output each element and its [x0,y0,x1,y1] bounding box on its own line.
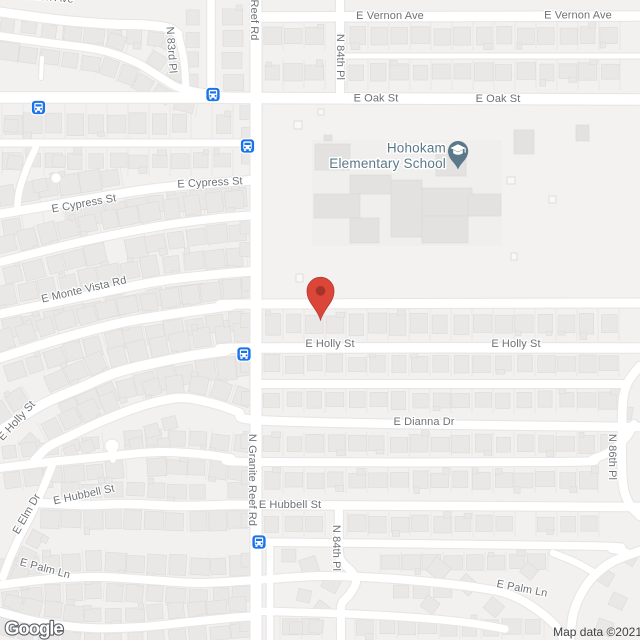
svg-text:E Vernon Ave: E Vernon Ave [356,10,424,22]
svg-text:E Holly St: E Holly St [305,338,354,350]
svg-text:N 84th Pl: N 84th Pl [334,34,346,80]
svg-text:N Granite Reef Rd: N Granite Reef Rd [246,434,258,526]
svg-text:N 86th Pl: N 86th Pl [606,434,618,480]
svg-text:E Dianna Dr: E Dianna Dr [393,416,454,428]
svg-text:Elementary School: Elementary School [329,156,446,171]
svg-text:E Hubbell St: E Hubbell St [259,499,321,511]
svg-text:E Oak St: E Oak St [354,92,399,104]
svg-text:N 84th Pl: N 84th Pl [330,525,342,571]
svg-text:E Vernon Ave: E Vernon Ave [544,9,612,21]
svg-text:Reef Rd: Reef Rd [248,0,260,41]
svg-text:Hohokam: Hohokam [387,141,446,156]
svg-text:E Oak St: E Oak St [476,93,521,105]
svg-text:Google: Google [5,618,63,639]
svg-text:E Holly St: E Holly St [491,338,540,350]
svg-text:Map data ©2021: Map data ©2021 [553,625,640,639]
